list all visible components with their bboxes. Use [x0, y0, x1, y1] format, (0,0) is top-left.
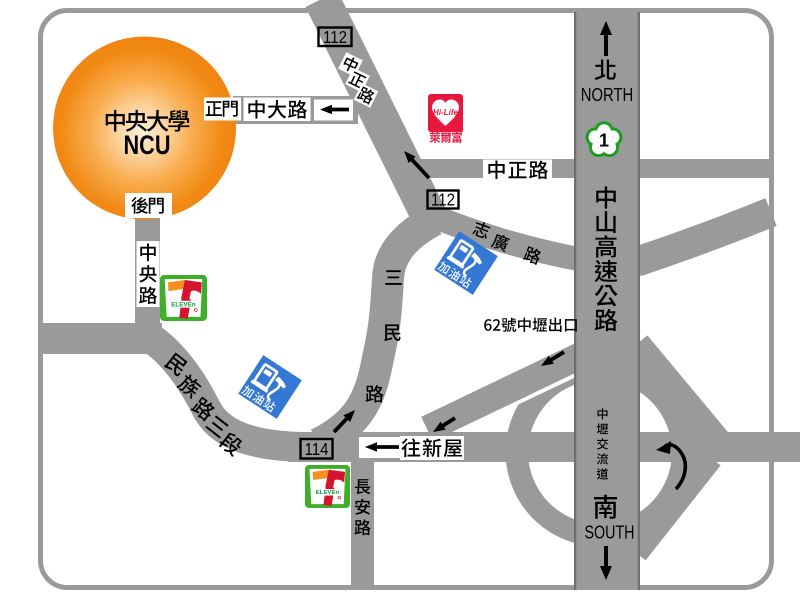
- svg-text:112: 112: [323, 27, 347, 47]
- svg-text:114: 114: [305, 439, 329, 459]
- svg-text:ELEVEn: ELEVEn: [171, 302, 196, 308]
- svg-text:1: 1: [599, 131, 609, 151]
- svg-text:Hi-Life: Hi-Life: [433, 108, 458, 117]
- svg-text:ELEVEn: ELEVEn: [316, 490, 340, 496]
- svg-text:SOUTH: SOUTH: [585, 523, 635, 543]
- svg-text:NORTH: NORTH: [581, 85, 634, 105]
- svg-text:112: 112: [431, 190, 455, 210]
- svg-text:NCU: NCU: [124, 130, 171, 160]
